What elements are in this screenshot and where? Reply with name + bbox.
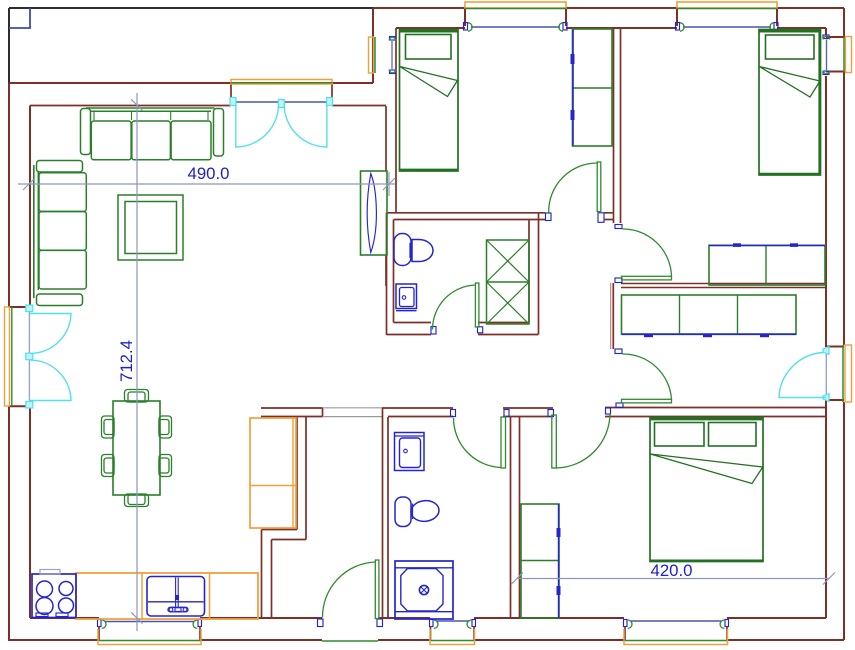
- svg-text:420.0: 420.0: [651, 561, 693, 580]
- svg-text:490.0: 490.0: [188, 164, 230, 183]
- svg-text:712.4: 712.4: [117, 340, 136, 382]
